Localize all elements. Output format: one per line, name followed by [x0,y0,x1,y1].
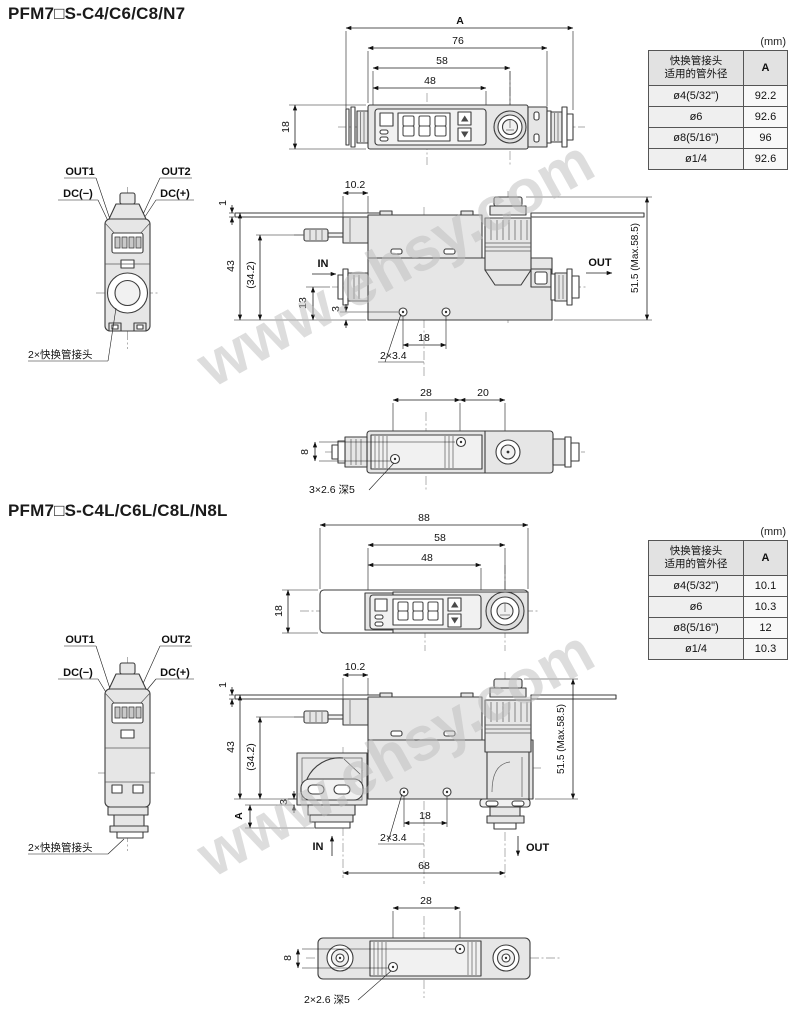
fitting-note: 2×快换管接头 [28,348,92,361]
a-cell: 12 [744,618,788,639]
valve-assembly [485,218,531,270]
fitting-table-2: (mm) 快换管接头适用的管外径 A ø4(5/32")10.1 ø610.3 … [648,526,788,660]
dim-label-51-5: 51.5 (Max.58.5) [630,223,641,293]
dim-label-58: 58 [436,55,448,67]
dim-label-34-2: (34.2) [245,743,257,770]
flow-in-label: IN [318,258,329,270]
dc-plus-label: DC(+) [160,188,190,200]
od-cell: ø4(5/32") [649,576,744,597]
valve-assembly [485,700,531,752]
a-cell: 96 [744,128,788,149]
dim-label-3: 3 [278,799,290,805]
dim-label-A: A [233,812,245,820]
table-header-od: 快换管接头适用的管外径 [649,541,744,576]
dim-label-58: 58 [434,532,446,544]
od-cell: ø8(5/16") [649,618,744,639]
dim-label-A: A [456,15,464,27]
dc-plus-label: DC(+) [160,667,190,679]
section-title-2: PFM7□S-C4L/C6L/C8L/N8L [8,501,228,521]
dim-label-10-2: 10.2 [345,179,366,191]
od-cell: ø6 [649,597,744,618]
fitting-note: 2×快换管接头 [28,841,92,854]
table-row: ø4(5/32")92.2 [649,86,788,107]
dim-label-8: 8 [299,449,311,455]
dim-label-10-2: 10.2 [345,661,366,673]
dim-label-18: 18 [280,121,292,133]
dc-minus-label: DC(−) [63,667,93,679]
set-button [375,599,387,611]
digital-display [393,599,443,625]
dc-minus-label: DC(−) [63,188,93,200]
dim-label-3: 3 [330,306,342,312]
dim-label-18: 18 [419,810,431,822]
table-row: ø4(5/32")10.1 [649,576,788,597]
od-cell: ø4(5/32") [649,86,744,107]
side-view-1: OUT1 OUT2 DC(−) DC(+) 2×快换管接头 [20,163,230,373]
table-header-a: A [744,541,788,576]
a-cell: 92.6 [744,149,788,170]
od-cell: ø8(5/16") [649,128,744,149]
bottom-bracket [108,807,148,815]
table-row: ø610.3 [649,597,788,618]
unit-note: (mm) [648,526,788,538]
dim-label-48: 48 [421,552,433,564]
out2-label: OUT2 [161,166,190,178]
a-cell: 10.3 [744,597,788,618]
dim-label-13: 13 [297,297,309,309]
front-view-2: 88 58 48 18 [272,515,648,657]
out1-label: OUT1 [65,634,94,646]
table-header-od: 快换管接头适用的管外径 [649,51,744,86]
table-row: ø1/492.6 [649,149,788,170]
flow-in-label: IN [313,841,324,853]
datasheet-page: PFM7□S-C4/C6/C8/N7 PFM7□S-C4L/C6L/C8L/N8… [0,0,790,1012]
table-header-a: A [744,51,788,86]
set-button [380,113,393,126]
a-cell: 92.6 [744,107,788,128]
bottom-view-2: 28 8 2×2.6 深5 [278,896,588,1008]
table-row: ø692.6 [649,107,788,128]
dim-label-43: 43 [225,741,237,753]
dim-label-48: 48 [424,75,436,87]
dim-label-20: 20 [477,387,489,399]
dim-label-1: 1 [217,200,229,206]
elevation-view-2: 1 10.2 43 (34.2) 3 A 18 2×3.4 IN OUT 68 [228,652,663,900]
dim-label-1: 1 [217,682,229,688]
table-row: ø8(5/16")12 [649,618,788,639]
flow-out-label: OUT [588,257,612,269]
hole-note: 3×2.6 深5 [309,484,355,496]
side-view-2: OUT1 OUT2 DC(−) DC(+) 2×快换管接头 [20,633,230,868]
dim-label-88: 88 [418,512,430,524]
unit-note: (mm) [648,36,788,48]
dim-label-76: 76 [452,35,464,47]
dim-label-34-2: (34.2) [245,261,257,288]
dim-label-18: 18 [418,332,430,344]
dim-label-8: 8 [282,955,294,961]
out1-label: OUT1 [65,166,94,178]
table-row: ø8(5/16")96 [649,128,788,149]
dim-label-68: 68 [418,860,430,872]
front-view-1: A 76 58 48 18 [280,15,645,167]
hole-note: 2×3.4 [380,350,407,362]
display-unit-side [368,697,482,740]
a-cell: 10.1 [744,576,788,597]
dim-label-51-5: 51.5 (Max.58.5) [556,704,567,774]
dim-label-28: 28 [420,895,432,907]
bottom-view-1: 28 20 8 3×2.6 深5 [295,386,615,498]
digital-display [398,113,450,141]
a-cell: 10.3 [744,639,788,660]
section-title-1: PFM7□S-C4/C6/C8/N7 [8,4,185,24]
elevation-view-1: 1 10.2 43 (34.2) IN OUT 18 2×3.4 13 3 51… [228,163,663,391]
dim-label-28: 28 [420,387,432,399]
od-cell: ø6 [649,107,744,128]
od-cell: ø1/4 [649,639,744,660]
dim-label-43: 43 [225,260,237,272]
smc-logo-plate [121,730,134,738]
fitting-table-1: (mm) 快换管接头适用的管外径 A ø4(5/32")92.2 ø692.6 … [648,36,788,170]
a-cell: 92.2 [744,86,788,107]
dim-label-18: 18 [273,605,285,617]
od-cell: ø1/4 [649,149,744,170]
hole-note: 2×2.6 深5 [304,994,350,1006]
table-row: ø1/410.3 [649,639,788,660]
hole-note: 2×3.4 [380,832,407,844]
out2-label: OUT2 [161,634,190,646]
display-unit-side [368,215,482,258]
flow-out-label: OUT [526,842,550,854]
